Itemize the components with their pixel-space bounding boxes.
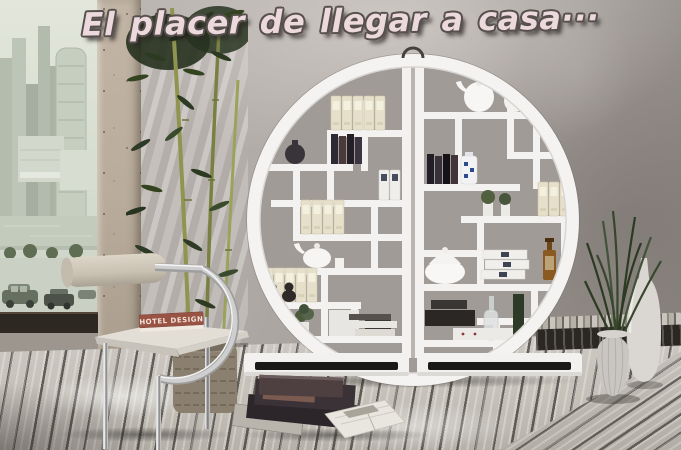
- shelf-base-right: [417, 353, 582, 376]
- room-scene: HOTEL DESIGN: [0, 0, 681, 450]
- ribbed-pot: [597, 330, 629, 396]
- tall-vase: [627, 258, 661, 382]
- circular-bookshelf: [231, 44, 595, 388]
- harbor-water: [0, 216, 98, 248]
- floor-magazines: [225, 370, 430, 450]
- blue-white-jar: [461, 152, 477, 184]
- round-vase: [285, 144, 305, 164]
- right-plants: [583, 203, 681, 405]
- white-binder-stack: [481, 250, 529, 279]
- chair-bolster: [60, 252, 167, 288]
- chair-book: HOTEL DESIGN: [139, 312, 204, 332]
- skyline-buildings: [0, 26, 98, 244]
